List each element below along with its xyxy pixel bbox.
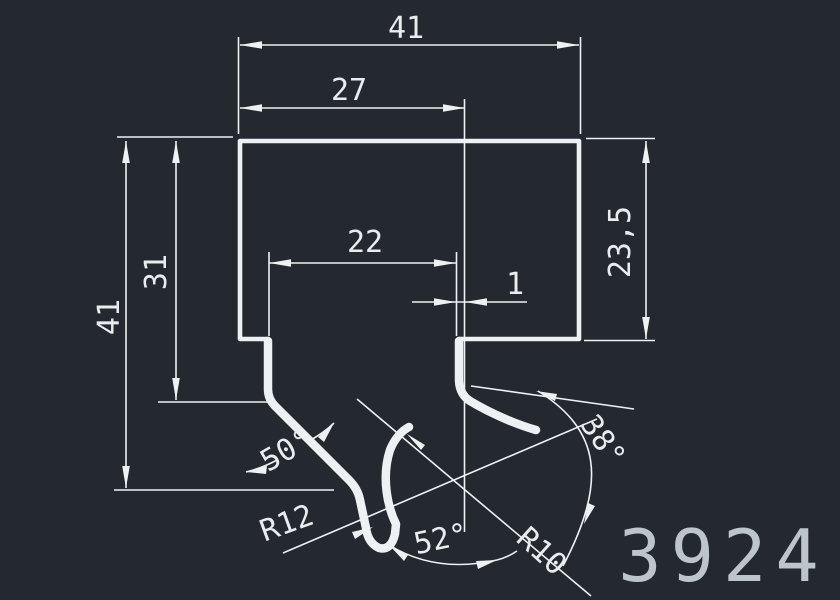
cad-drawing-canvas: 41 27 22 1 23,5 41 31 50° R12 52° R10 38… xyxy=(0,0,840,600)
profile-right-lip xyxy=(459,341,536,430)
profile-outline xyxy=(240,141,579,548)
dim-label-slot-width: 22 xyxy=(347,228,383,258)
dim-label-top-width: 27 xyxy=(331,76,367,106)
angle-52-arc-tail xyxy=(497,551,517,560)
dim-label-total-width: 41 xyxy=(388,14,424,44)
dim-label-step-height: 31 xyxy=(142,254,172,290)
profile-body xyxy=(240,141,579,339)
dim-label-left-height: 41 xyxy=(95,299,125,335)
part-number-label: 3924 xyxy=(618,520,827,592)
dimension-lines xyxy=(126,45,646,488)
dim-label-wall-offset: 1 xyxy=(506,270,524,300)
dim-label-right-height: 23,5 xyxy=(606,206,636,278)
